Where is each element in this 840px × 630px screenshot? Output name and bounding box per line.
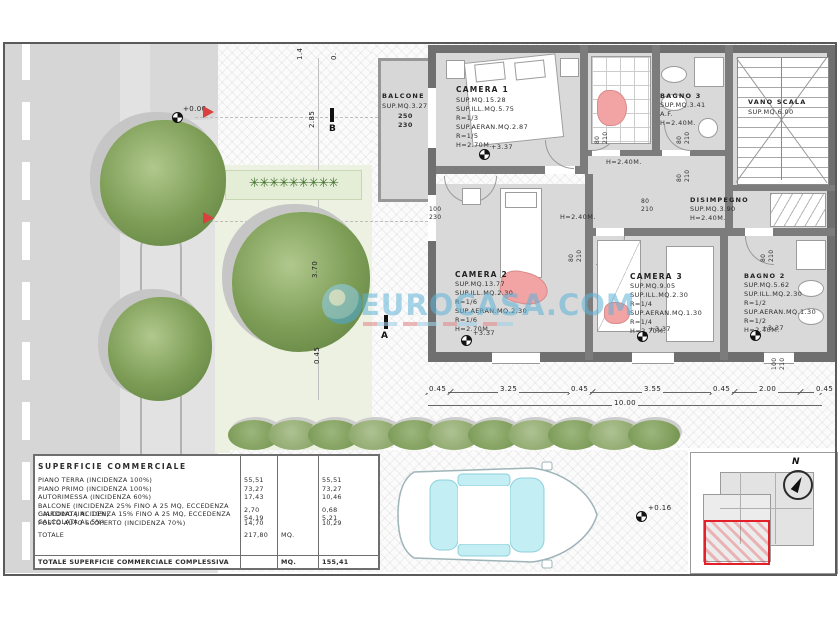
hall-height-label: H=2.40M. [560, 213, 596, 222]
car-top-view [392, 460, 602, 570]
table-filler-row [35, 543, 378, 555]
room-name-camera3: CAMERA 3 [630, 272, 683, 281]
north-label: N [792, 457, 800, 467]
table-row: BALCONE (INCIDENZA 25% FINO A 25 MQ, ECC… [35, 502, 378, 511]
dim-label: 2.85 [308, 100, 316, 128]
hall-height-label: H=2.40M. [606, 158, 642, 167]
door-gap [745, 228, 773, 236]
dim-label: 0. [330, 44, 338, 60]
stair-center-line [781, 58, 782, 180]
watermark-tagline [363, 322, 513, 326]
wall [585, 174, 593, 360]
table-row: PIANO PRIMO (INCIDENZA 100%)73,2773,27 [35, 485, 378, 494]
dim-label: 0.45 [427, 385, 448, 393]
key-plan-inner-line [720, 508, 812, 509]
dim-label: 0.45 [711, 385, 732, 393]
level-marker-icon [479, 149, 490, 160]
wall [720, 228, 728, 360]
room-info-vano-scala: SUP.MQ.6.00 [748, 108, 794, 117]
level-marker-icon [172, 112, 183, 123]
wall [428, 45, 835, 53]
dim-label: 3.55 [642, 385, 663, 393]
door-label: 80 210 [641, 198, 653, 214]
room-info-disimpegno: SUP.MQ.3.90 H=2.40M. [690, 205, 736, 223]
dim-label: 2.00 [757, 385, 778, 393]
wall [652, 45, 660, 150]
nightstand [560, 58, 579, 77]
table-row: POSTO AUTO SCOPERTO (INCIDENZA 70%)14,70… [35, 519, 378, 528]
room-name-vano-scala: VANO SCALA [748, 98, 807, 106]
room-name-balcone: BALCONE [382, 92, 425, 100]
door-label: 80 210 [760, 236, 776, 262]
unit-highlight [704, 520, 770, 565]
room-level-camera2: +3.37 [473, 329, 495, 338]
watermark-text: EUROCASA.COM [360, 288, 636, 322]
level-marker-icon [461, 335, 472, 346]
dim-label: 3.70 [311, 250, 319, 278]
pillow [514, 59, 546, 80]
table-title-row: SUPERFICIE COMMERCIALE [35, 456, 378, 476]
level-marker-icon [637, 331, 648, 342]
drawing-canvas: ✳✳✳✳✳✳✳✳✳ +0.00 1.4 0. 2.85 B 3.70 0.45 … [0, 0, 840, 630]
door-gap [592, 150, 620, 156]
window-size-label: 100 230 [429, 206, 441, 222]
wall [588, 228, 835, 236]
surface-table: SUPERFICIE COMMERCIALE PIANO TERRA (INCI… [33, 454, 380, 570]
red-arrow-icon [203, 106, 214, 118]
room-name-disimpegno: DISIMPEGNO [690, 196, 749, 204]
room-name-camera2: CAMERA 2 [455, 270, 508, 279]
table-title: SUPERFICIE COMMERCIALE [35, 456, 240, 476]
window-label: 250 230 [398, 112, 413, 130]
red-arrow-icon [203, 212, 214, 224]
door-label: 80 210 [568, 236, 584, 262]
room-level-camera3: +3.37 [649, 325, 671, 334]
level-marker-icon [750, 330, 761, 341]
bush [628, 420, 680, 450]
dim-label: 0.45 [814, 385, 835, 393]
shower [694, 57, 724, 87]
road-center-line [22, 42, 30, 573]
table-row: PIANO TERRA (INCIDENZA 100%)55,5155,51 [35, 476, 378, 485]
wall [580, 45, 588, 168]
north-arrow-icon [791, 475, 806, 493]
table-row: AUTORIMESSA (INCIDENZA 60%)17,4310,46 [35, 493, 378, 502]
hedge-plants: ✳✳✳✳✳✳✳✳✳ [225, 170, 362, 200]
pillow [474, 61, 506, 82]
pillow [505, 192, 537, 208]
section-marker-b [330, 108, 334, 122]
door-label: 80 210 [594, 118, 610, 144]
door-label: 80 210 [676, 156, 692, 182]
room-name-bagno2: BAGNO 2 [744, 272, 785, 280]
door-label: 80 210 [676, 118, 692, 144]
watermark-logo-icon [322, 284, 362, 324]
table-row: GIARDINO (INCIDENZA 15% FINO A 25 MQ, EC… [35, 510, 378, 519]
room-level-camera1: +3.37 [491, 143, 513, 152]
room-name-camera1: CAMERA 1 [456, 85, 509, 94]
window-gap [428, 88, 436, 148]
dim-label: 3.25 [498, 385, 519, 393]
closet [770, 193, 826, 227]
dim-label: 0.45 [313, 336, 321, 364]
room-info-balcone: SUP.MQ.3.27 [382, 102, 428, 111]
window-gap [492, 352, 540, 364]
room-level-bagno2: +3.37 [762, 324, 784, 333]
section-label-b: B [329, 124, 336, 134]
door-gap [596, 228, 624, 236]
nightstand [446, 60, 465, 79]
room-name-bagno3: BAGNO 3 [660, 92, 701, 100]
dim-label: 0.45 [569, 385, 590, 393]
window-gap [632, 352, 674, 364]
table-total-row: TOTALE217,80MQ. [35, 527, 378, 543]
table-footer-row: TOTALE SUPERFICIE COMMERCIALE COMPLESSIV… [35, 555, 378, 568]
hedge-row [240, 418, 690, 452]
parking-level: +0.16 [648, 504, 671, 512]
nightstand [462, 188, 481, 205]
compass-icon [783, 470, 813, 500]
toilet [661, 66, 687, 83]
shower [796, 240, 826, 270]
window-size-label: 100 210 [771, 342, 787, 370]
dim-label: 1.4 [296, 44, 304, 60]
paving-top [218, 42, 375, 168]
dim-total-label: 10.00 [612, 399, 638, 407]
section-label-a: A [381, 331, 388, 341]
plant-icons: ✳✳✳✳✳✳✳✳✳ [249, 176, 338, 191]
wall [733, 185, 835, 191]
level-marker-icon [636, 511, 647, 522]
